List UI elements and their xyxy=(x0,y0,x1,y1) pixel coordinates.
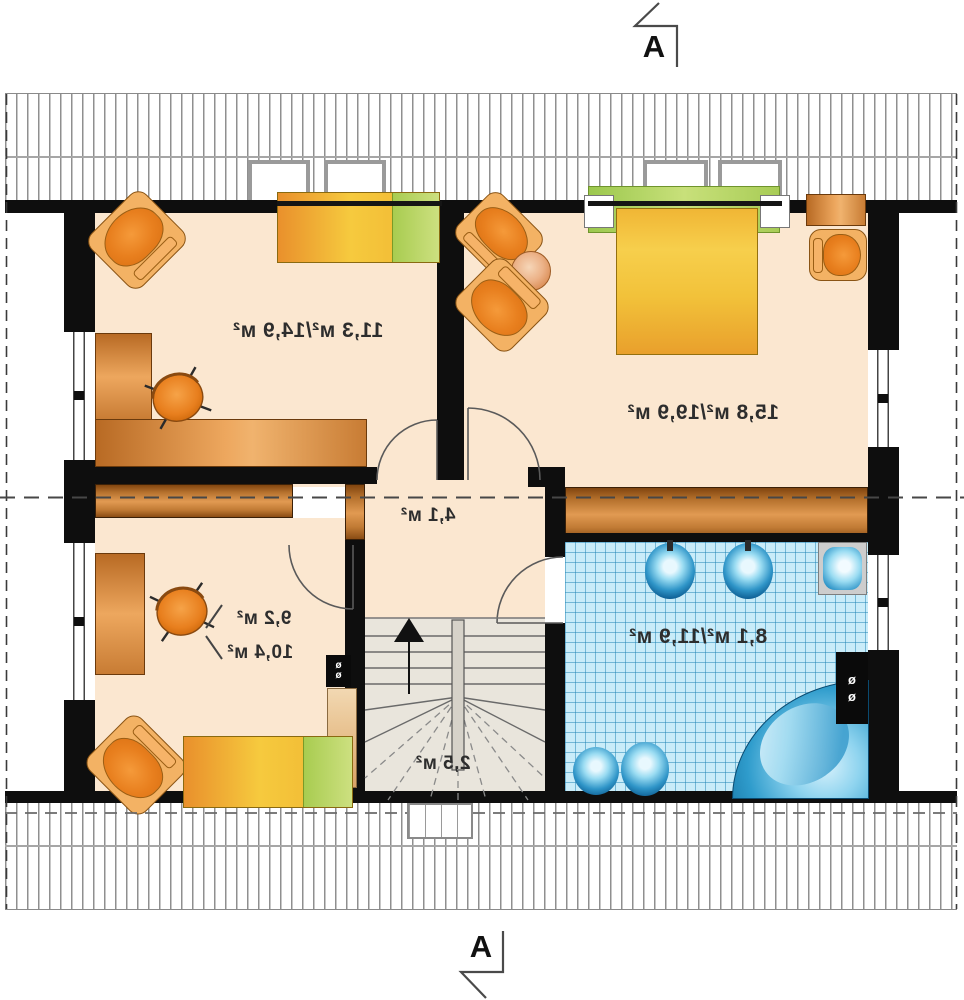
stair-lower-flight xyxy=(407,803,473,839)
roof-hatch-bottom xyxy=(5,803,957,910)
sink xyxy=(645,543,695,599)
window-tick xyxy=(878,394,888,403)
wall-bathroom-left-lower xyxy=(545,623,565,803)
section-marker-top: A xyxy=(643,29,665,65)
wall-left-segment xyxy=(64,700,95,803)
wall-right-segment xyxy=(868,650,899,803)
flue-symbol: ø xyxy=(848,690,856,703)
area-label-bathroom: 8,1 м²/11,9 м² xyxy=(629,625,767,649)
wall-right-segment xyxy=(868,200,899,350)
wall-left-segment xyxy=(64,200,95,332)
area-label-staircase: 2,5 м² xyxy=(415,753,470,775)
shower xyxy=(818,542,867,595)
wall-divider-left xyxy=(95,467,377,484)
side-chair xyxy=(809,229,867,281)
roof-eave-line-bottom xyxy=(5,845,957,847)
roof-hatch-top xyxy=(5,93,957,203)
wardrobe-band xyxy=(95,484,293,518)
single-bed xyxy=(183,736,353,808)
double-bed xyxy=(616,208,758,355)
area-label-hall: 4,1 м² xyxy=(400,505,455,527)
wall-left-segment xyxy=(64,460,95,543)
wall-bathroom-top xyxy=(565,533,868,542)
wardrobe-band-end xyxy=(345,484,365,540)
wall-over-bed-line xyxy=(588,201,782,206)
area-label-bedroom-top-left: 11,3 м²/14,9 м² xyxy=(233,319,384,343)
area-label-bedroom-bottom-left-2: 10,4 м² xyxy=(227,642,293,664)
desk xyxy=(95,553,145,675)
wall-bathroom-left-upper xyxy=(545,467,565,557)
roof-eave-line-top xyxy=(5,156,957,158)
sink xyxy=(723,543,773,599)
flue-symbol: ø xyxy=(335,671,341,681)
floor-hall xyxy=(363,480,545,620)
flue-symbol: ø xyxy=(848,673,856,686)
section-marker-bottom: A xyxy=(470,929,492,965)
chimney-flue: ø ø xyxy=(326,655,351,687)
nightstand xyxy=(584,195,614,228)
window-tick xyxy=(74,617,84,626)
area-label-bedroom-bottom-left-1: 9,2 м² xyxy=(236,608,291,630)
desk-counter xyxy=(95,419,367,467)
wall-between-top-bedrooms xyxy=(437,213,464,480)
bidet xyxy=(621,742,669,796)
dresser xyxy=(806,194,866,226)
nightstand xyxy=(760,195,790,228)
bed-pillow xyxy=(303,737,352,807)
desk-return xyxy=(95,333,152,421)
window-tick xyxy=(74,391,84,400)
window-tick xyxy=(878,598,888,607)
wall-over-bed-line xyxy=(277,201,442,206)
toilet xyxy=(573,747,619,795)
floor-plan: ø ø ø ø xyxy=(0,0,964,1000)
chimney-flue: ø ø xyxy=(836,652,868,724)
wall-right-segment xyxy=(868,447,899,555)
area-label-bedroom-top-right: 15,8 м²/19,9 м² xyxy=(627,401,779,425)
